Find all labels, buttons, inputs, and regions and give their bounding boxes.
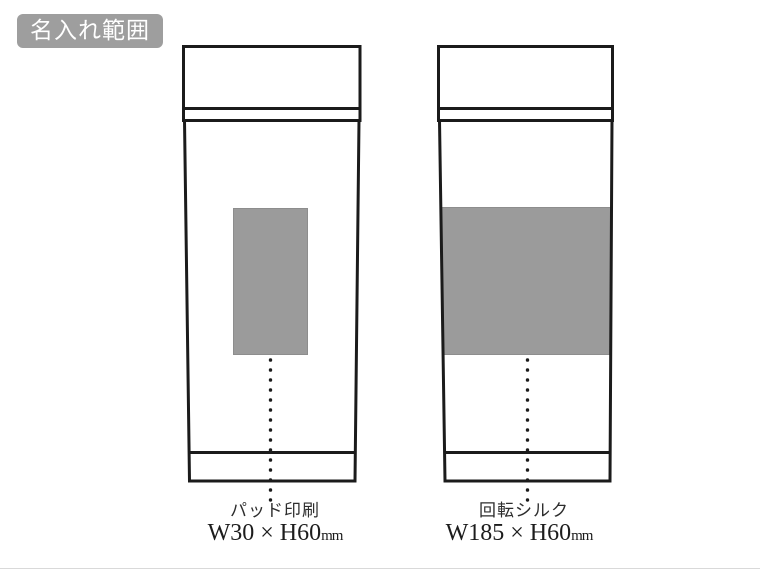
page-bottom-rule bbox=[0, 568, 760, 569]
print-dimension-right-value: W185 × H60 bbox=[446, 520, 572, 546]
print-dimension-right: W185 × H60mm bbox=[446, 520, 593, 550]
print-dimension-left-value: W30 × H60 bbox=[208, 520, 322, 546]
print-method-label-left: パッド印刷 bbox=[230, 502, 320, 520]
print-area-diagram: 名入れ範囲 パッド印刷 W30 × H60mm 回転シルク W185 × H60… bbox=[0, 0, 760, 570]
tumbler-diagram-canvas bbox=[0, 0, 760, 570]
print-dimension-left: W30 × H60mm bbox=[208, 520, 343, 550]
print-dimension-left-unit: mm bbox=[321, 528, 342, 544]
print-method-label-right: 回転シルク bbox=[479, 502, 569, 520]
section-badge: 名入れ範囲 bbox=[17, 14, 163, 48]
print-area-right bbox=[441, 207, 612, 355]
print-area-left bbox=[233, 208, 308, 355]
print-dimension-right-unit: mm bbox=[571, 528, 592, 544]
